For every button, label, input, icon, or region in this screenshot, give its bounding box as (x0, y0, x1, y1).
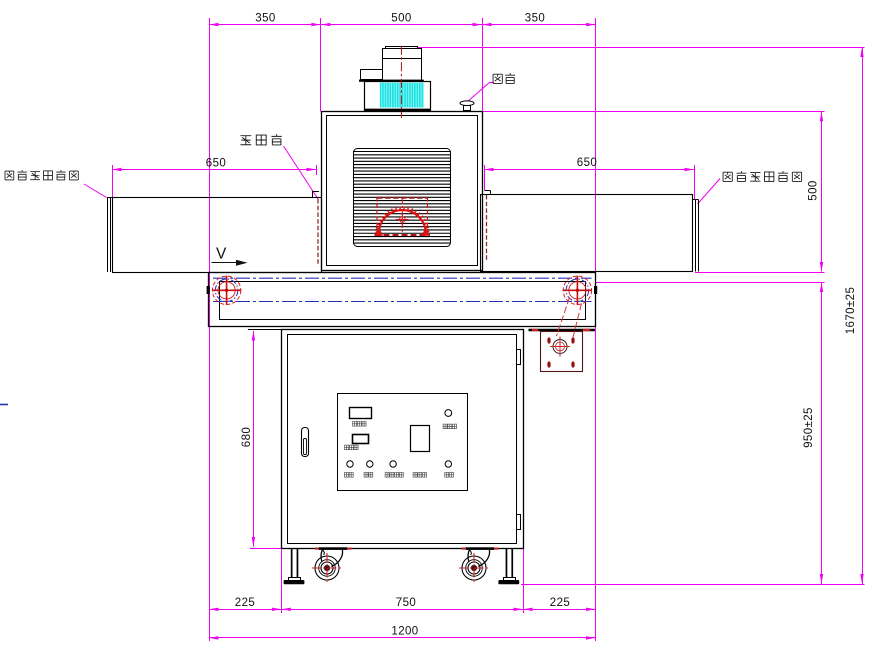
svg-text:1670±25: 1670±25 (845, 287, 857, 335)
svg-text:950±25: 950±25 (803, 407, 815, 448)
svg-text:350: 350 (525, 13, 545, 25)
svg-text:650: 650 (577, 157, 597, 169)
svg-text:500: 500 (808, 180, 820, 200)
svg-text:225: 225 (235, 597, 255, 609)
svg-text:350: 350 (255, 13, 275, 25)
svg-text:V: V (216, 246, 227, 263)
svg-text:750: 750 (396, 597, 416, 609)
svg-text:680: 680 (241, 427, 253, 447)
svg-text:650: 650 (206, 158, 226, 170)
svg-text:225: 225 (550, 597, 570, 609)
svg-text:500: 500 (391, 13, 411, 25)
svg-text:1200: 1200 (391, 626, 418, 638)
